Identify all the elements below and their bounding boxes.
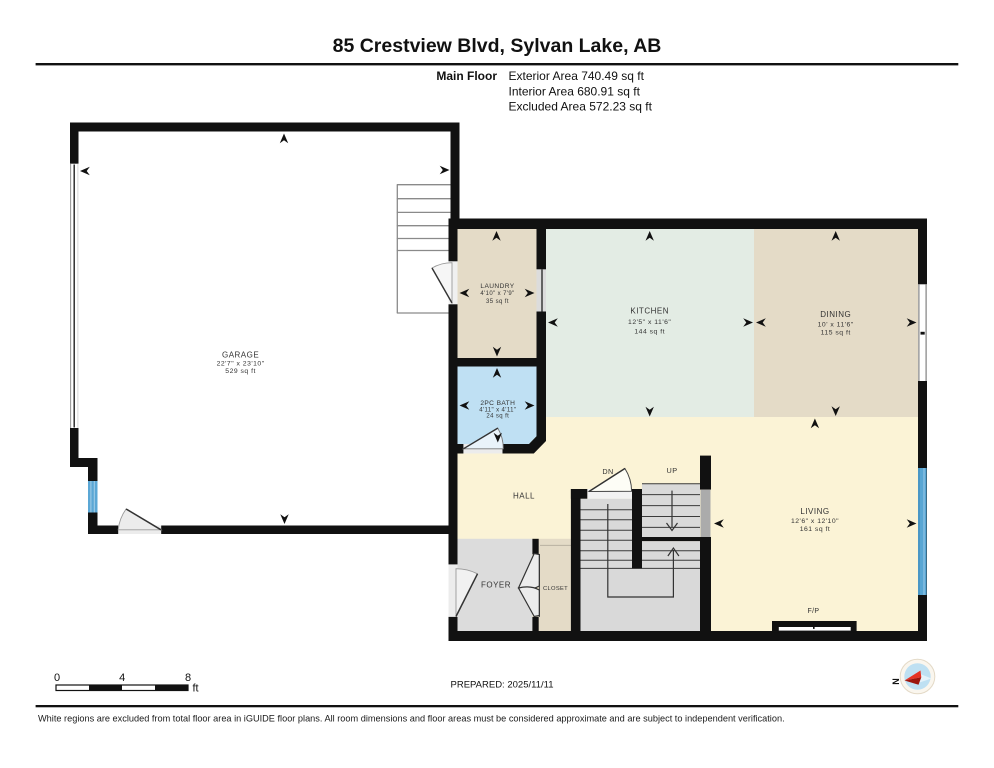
svg-text:35 sq ft: 35 sq ft (486, 299, 509, 305)
svg-text:12'6" x 12'10": 12'6" x 12'10" (791, 518, 839, 525)
svg-text:FOYER: FOYER (481, 581, 511, 590)
svg-text:4'11" x 4'11": 4'11" x 4'11" (479, 407, 516, 413)
svg-text:N: N (891, 678, 901, 685)
svg-text:LAUNDRY: LAUNDRY (480, 283, 514, 290)
svg-text:85 Crestview Blvd, Sylvan Lake: 85 Crestview Blvd, Sylvan Lake, AB (333, 35, 662, 57)
svg-text:PREPARED: 2025/11/11: PREPARED: 2025/11/11 (451, 680, 554, 691)
svg-text:LIVING: LIVING (800, 507, 829, 516)
svg-text:Main Floor: Main Floor (436, 69, 497, 83)
svg-text:22'7" x 23'10": 22'7" x 23'10" (217, 360, 265, 367)
svg-text:8: 8 (185, 672, 191, 684)
svg-text:24 sq ft: 24 sq ft (486, 414, 509, 420)
svg-text:4: 4 (119, 672, 125, 684)
svg-text:ft: ft (193, 683, 199, 695)
svg-text:0: 0 (54, 672, 60, 684)
svg-text:UP: UP (667, 466, 678, 475)
svg-text:Exterior Area 740.49 sq ft: Exterior Area 740.49 sq ft (509, 69, 645, 83)
svg-text:CLOSET: CLOSET (543, 586, 568, 592)
svg-text:HALL: HALL (513, 492, 535, 501)
svg-text:KITCHEN: KITCHEN (630, 307, 669, 316)
svg-text:GARAGE: GARAGE (222, 350, 259, 359)
svg-text:DINING: DINING (820, 310, 851, 319)
svg-text:12'5" x 11'6": 12'5" x 11'6" (628, 319, 671, 326)
svg-text:144 sq ft: 144 sq ft (634, 329, 665, 336)
svg-text:White regions are excluded fro: White regions are excluded from total fl… (38, 714, 785, 724)
svg-text:DN: DN (602, 467, 613, 476)
svg-text:161 sq ft: 161 sq ft (800, 526, 831, 533)
svg-text:2PC BATH: 2PC BATH (480, 400, 515, 407)
svg-text:115 sq ft: 115 sq ft (821, 330, 851, 337)
svg-text:4'10" x 7'9": 4'10" x 7'9" (480, 291, 514, 297)
svg-text:529 sq ft: 529 sq ft (225, 368, 256, 375)
svg-text:F/P: F/P (808, 608, 820, 615)
svg-text:Interior Area 680.91 sq ft: Interior Area 680.91 sq ft (509, 84, 641, 98)
svg-text:Excluded Area 572.23 sq ft: Excluded Area 572.23 sq ft (509, 100, 653, 114)
svg-text:10' x 11'6": 10' x 11'6" (818, 322, 854, 329)
